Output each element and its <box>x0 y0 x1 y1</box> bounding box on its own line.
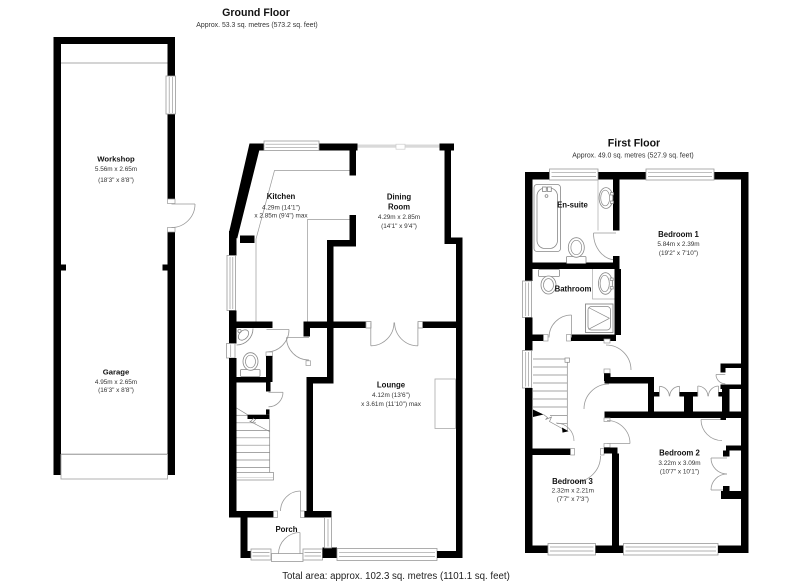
svg-text:En-suite: En-suite <box>557 201 588 210</box>
svg-text:4.95m x 2.65m: 4.95m x 2.65m <box>95 379 137 386</box>
svg-text:Ground Floor: Ground Floor <box>222 7 290 19</box>
svg-text:(18'3" x 8'8"): (18'3" x 8'8") <box>98 177 134 184</box>
svg-text:Bathroom: Bathroom <box>555 284 592 293</box>
svg-text:(14'1" x 9'4"): (14'1" x 9'4") <box>381 223 417 230</box>
svg-text:(16'3" x 8'8"): (16'3" x 8'8") <box>98 387 134 394</box>
svg-text:Kitchen: Kitchen <box>267 192 296 201</box>
svg-text:(19'2" x 7'10"): (19'2" x 7'10") <box>659 250 698 257</box>
svg-text:Garage: Garage <box>103 368 130 377</box>
svg-text:3.22m x 3.09m: 3.22m x 3.09m <box>658 460 700 467</box>
svg-text:4.29m (14'1"): 4.29m (14'1") <box>262 205 300 212</box>
svg-text:2.32m x 2.21m: 2.32m x 2.21m <box>552 488 594 495</box>
svg-text:First Floor: First Floor <box>608 138 660 150</box>
svg-text:Approx. 53.3 sq. metres (573.2: Approx. 53.3 sq. metres (573.2 sq. feet) <box>196 22 317 29</box>
svg-text:5.84m x 2.39m: 5.84m x 2.39m <box>657 241 699 248</box>
svg-text:Lounge: Lounge <box>377 381 406 390</box>
svg-text:4.12m (13'6"): 4.12m (13'6") <box>372 392 410 399</box>
svg-text:Bedroom 3: Bedroom 3 <box>552 477 593 486</box>
svg-text:Porch: Porch <box>275 525 297 534</box>
svg-text:(10'7" x 10'1"): (10'7" x 10'1") <box>660 469 699 476</box>
svg-text:Bedroom 1: Bedroom 1 <box>658 230 699 239</box>
svg-text:Workshop: Workshop <box>97 155 135 164</box>
svg-text:x 2.85m (9'4") max: x 2.85m (9'4") max <box>254 213 308 220</box>
svg-text:Total area: approx. 102.3 sq.: Total area: approx. 102.3 sq. metres (11… <box>282 571 510 582</box>
svg-text:5.56m x 2.65m: 5.56m x 2.65m <box>95 166 137 173</box>
svg-text:Dining: Dining <box>387 192 411 201</box>
svg-text:4.29m x 2.85m: 4.29m x 2.85m <box>378 214 420 221</box>
svg-text:Approx. 49.0 sq. metres (527.9: Approx. 49.0 sq. metres (527.9 sq. feet) <box>572 153 693 160</box>
svg-text:x 3.61m (11'10") max: x 3.61m (11'10") max <box>361 401 422 408</box>
svg-text:Room: Room <box>388 203 410 212</box>
svg-text:(7'7" x 7'3"): (7'7" x 7'3") <box>557 496 589 503</box>
svg-text:Bedroom 2: Bedroom 2 <box>659 449 700 458</box>
